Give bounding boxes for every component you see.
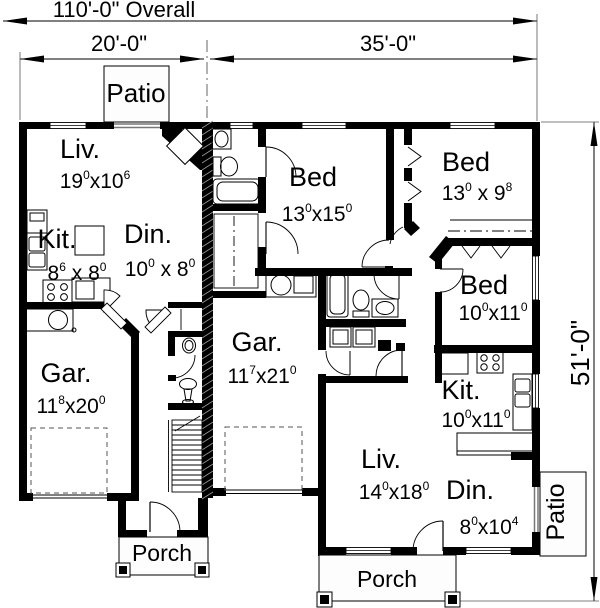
svg-text:Bed: Bed xyxy=(442,147,490,177)
svg-text:140x180: 140x180 xyxy=(359,479,430,504)
svg-text:80x104: 80x104 xyxy=(460,514,519,539)
svg-text:130 x 98: 130 x 98 xyxy=(442,180,513,205)
svg-text:Gar.: Gar. xyxy=(231,327,282,357)
svg-text:190x106: 190x106 xyxy=(60,168,131,193)
svg-text:35'-0": 35'-0" xyxy=(360,31,416,56)
svg-text:100x110: 100x110 xyxy=(441,407,510,432)
svg-text:Gar.: Gar. xyxy=(40,358,91,388)
svg-text:100x110: 100x110 xyxy=(458,300,527,325)
svg-text:Din.: Din. xyxy=(446,475,494,505)
svg-text:Bed: Bed xyxy=(460,270,508,300)
svg-text:Bed: Bed xyxy=(289,162,337,192)
svg-text:Patio: Patio xyxy=(542,484,570,541)
svg-text:51'-0": 51'-0" xyxy=(565,320,595,386)
svg-text:Din.: Din. xyxy=(124,219,172,249)
svg-text:Liv.: Liv. xyxy=(60,134,100,164)
svg-text:110'-0" Overall: 110'-0" Overall xyxy=(53,0,195,22)
svg-text:Porch: Porch xyxy=(357,566,417,592)
svg-text:130x150: 130x150 xyxy=(282,201,353,226)
svg-text:Kit.: Kit. xyxy=(37,224,76,254)
svg-text:20'-0": 20'-0" xyxy=(91,31,147,56)
svg-text:117x210: 117x210 xyxy=(227,363,296,388)
svg-text:Patio: Patio xyxy=(106,78,165,108)
svg-text:Liv.: Liv. xyxy=(361,444,401,474)
svg-text:Porch: Porch xyxy=(132,540,192,566)
svg-text:Kit.: Kit. xyxy=(441,375,480,405)
svg-text:118x200: 118x200 xyxy=(36,393,105,418)
svg-text:100 x 80: 100 x 80 xyxy=(125,256,196,281)
